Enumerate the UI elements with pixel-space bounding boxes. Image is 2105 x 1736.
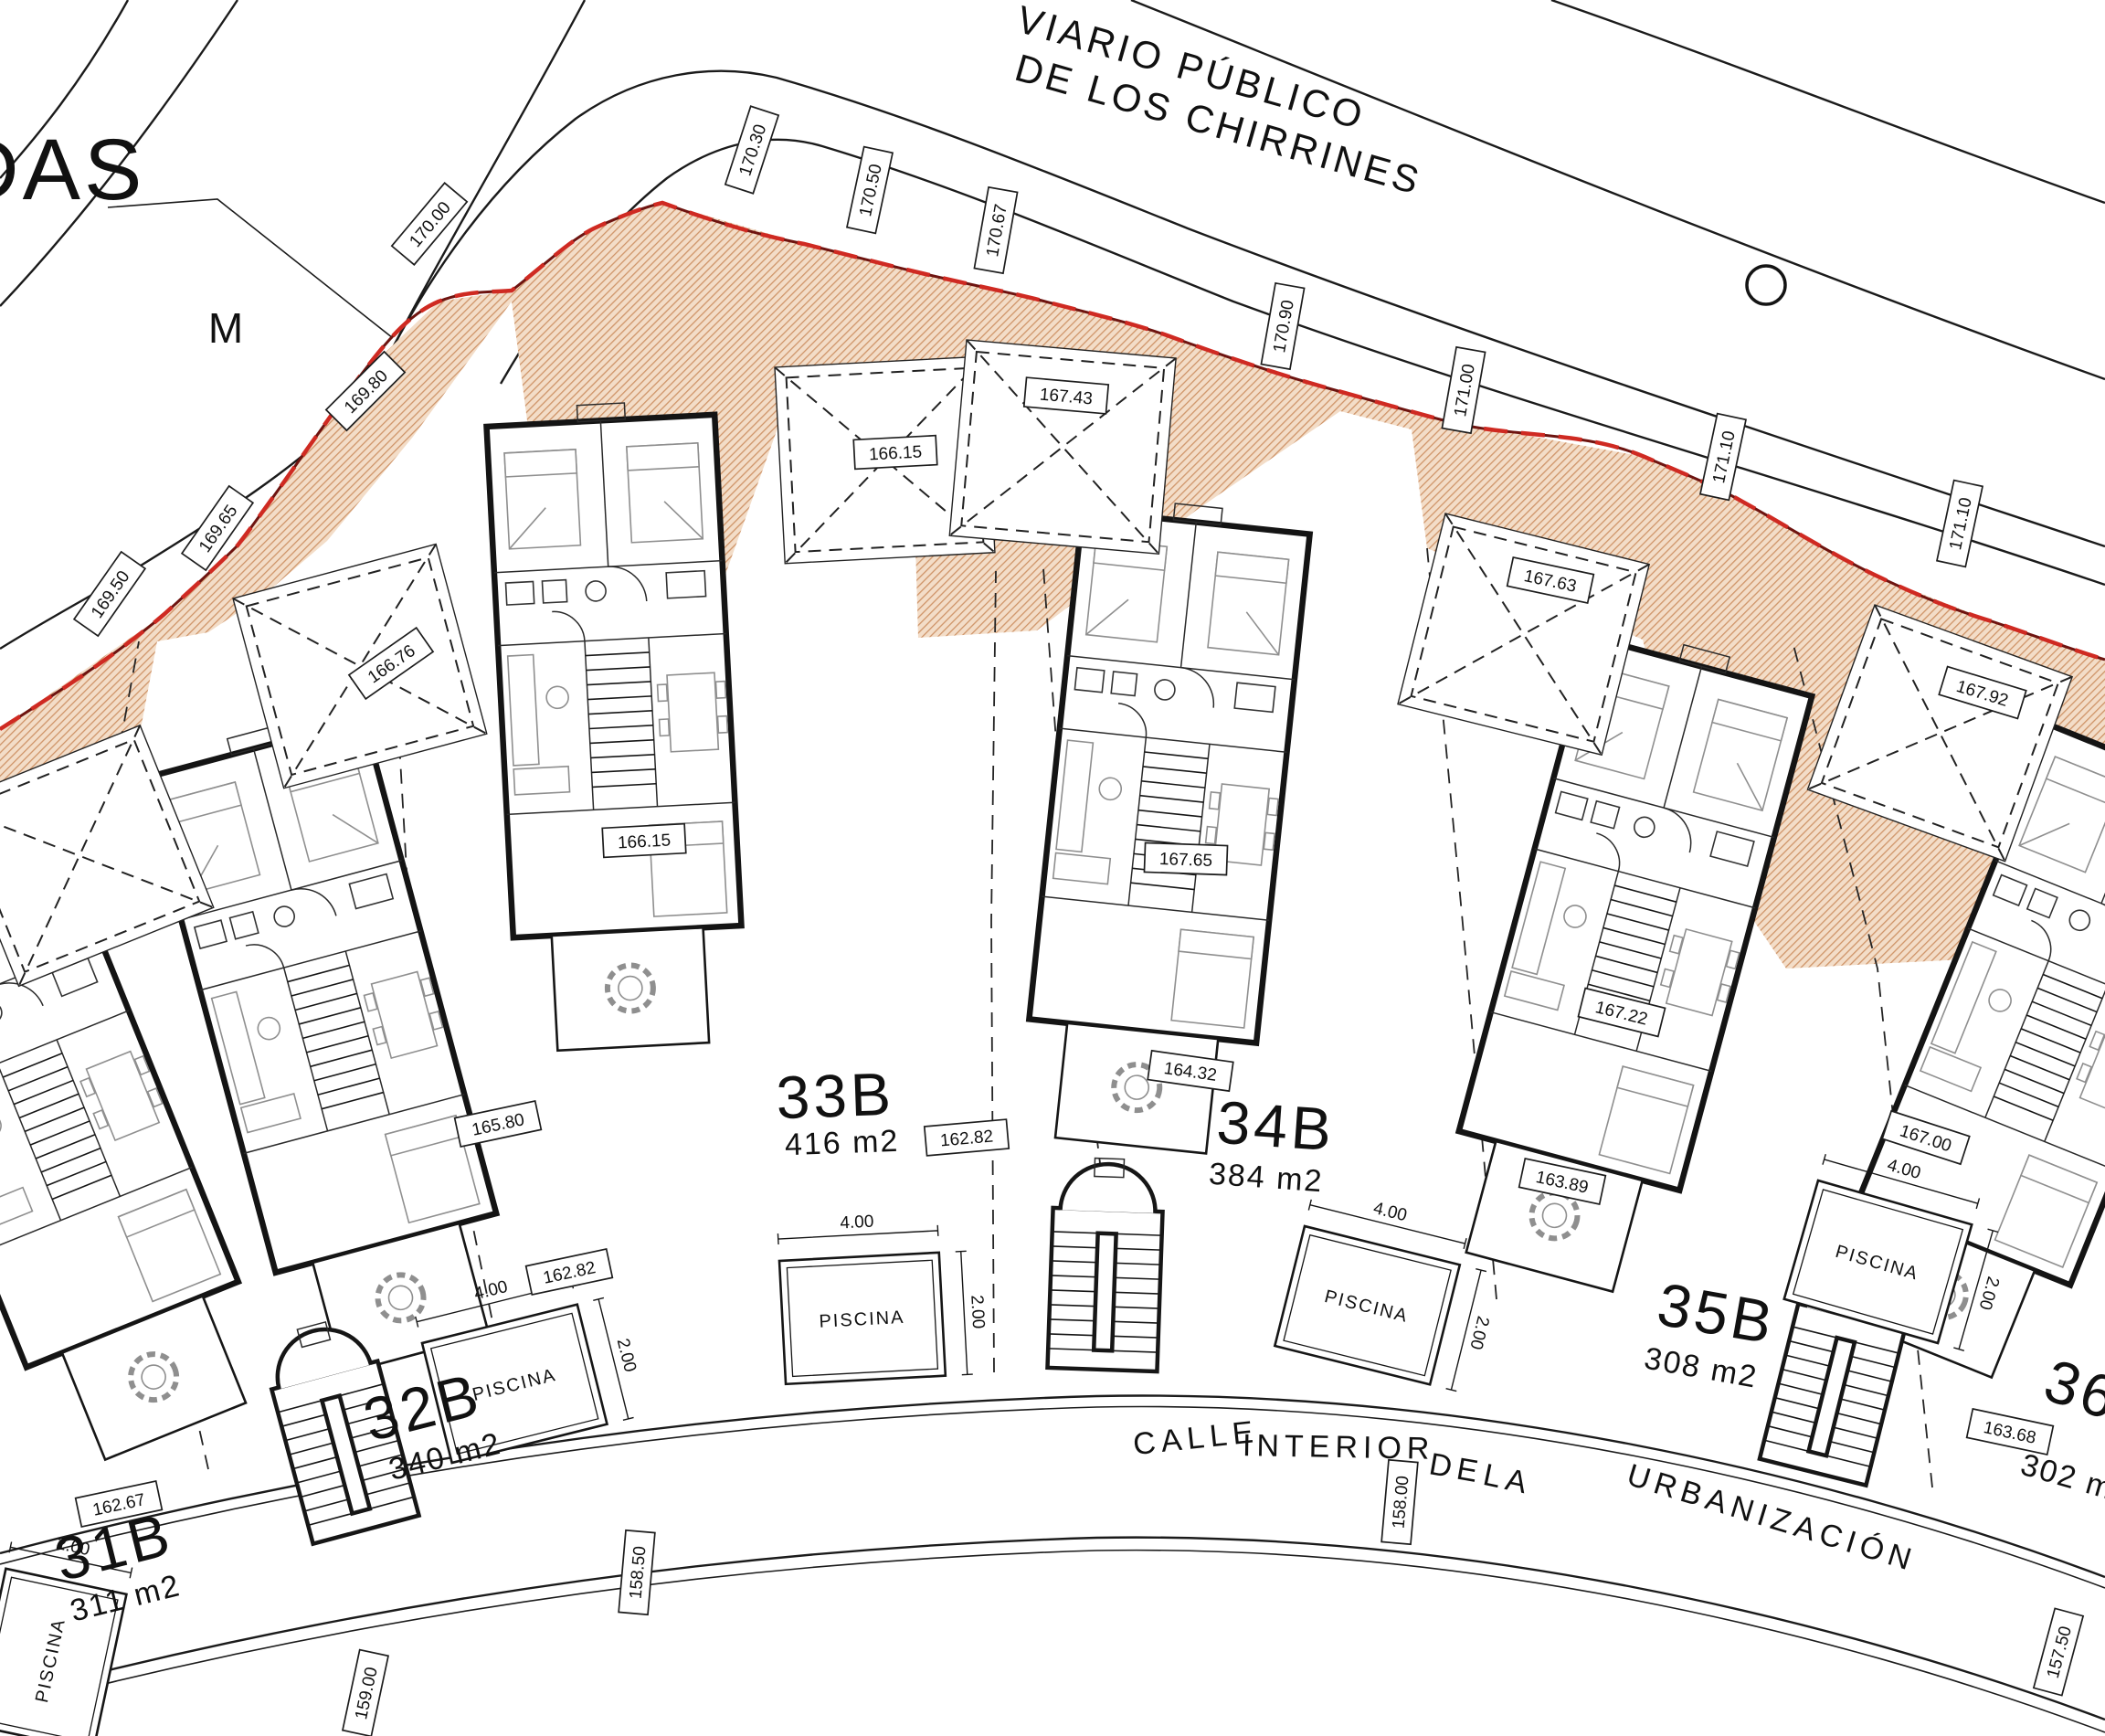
m-label: M xyxy=(208,304,243,352)
elevation-marker: 170.30 xyxy=(725,106,778,193)
plot-35b-id: 35B xyxy=(1653,1270,1781,1357)
plot-36b-area: 302 m2 xyxy=(2017,1447,2105,1512)
street-calle-seg-0: CALLE xyxy=(1131,1414,1260,1462)
pool-width-dim: 2.00 xyxy=(1465,1314,1492,1351)
parcel-line-33-34a xyxy=(991,571,996,1372)
pool-length-dim: 4.00 xyxy=(840,1212,874,1233)
o-symbol xyxy=(1747,266,1785,304)
elevation-marker: 170.90 xyxy=(1261,283,1304,369)
site-plan-sheet: 4.00 2.00 PISCINA 4.00 2.00 PISCINA 4.00… xyxy=(0,0,2105,1736)
leader-line xyxy=(108,199,393,338)
elevation-marker: 166.15 xyxy=(602,824,686,858)
elevation-marker: 167.43 xyxy=(1024,377,1108,414)
street-calle-seg-1: INTERIOR xyxy=(1243,1428,1435,1466)
plot-34b-id: 34B xyxy=(1214,1088,1337,1164)
plot-33b-area: 416 m2 xyxy=(784,1124,900,1162)
elevation-marker-value: 167.65 xyxy=(1159,850,1213,871)
elevation-marker: 157.50 xyxy=(2034,1608,2083,1695)
street-calle-seg-2: DE xyxy=(1426,1446,1486,1490)
elevation-marker: 167.65 xyxy=(1144,842,1227,874)
street-calle-seg-3: LA xyxy=(1480,1457,1535,1501)
roof-34b xyxy=(949,340,1176,554)
pool-33b: 4.00 2.00 PISCINA xyxy=(777,1206,989,1383)
elevation-marker: 170.00 xyxy=(392,183,467,265)
elevation-marker: 159.00 xyxy=(343,1650,388,1736)
elevation-marker: 163.68 xyxy=(1967,1409,2054,1455)
pool-width-dim: 2.00 xyxy=(613,1337,640,1374)
elevation-marker: 162.82 xyxy=(526,1249,613,1295)
bottom-road-kerb-lower-1 xyxy=(0,1538,2105,1720)
elevation-marker: 171.00 xyxy=(1442,347,1485,433)
elevation-marker: 162.82 xyxy=(925,1119,1009,1156)
elevation-marker: 169.50 xyxy=(74,552,145,636)
elevation-marker-value: 166.15 xyxy=(869,442,923,464)
elevation-marker-value: 166.15 xyxy=(618,831,672,852)
site-plan-drawing: 4.00 2.00 PISCINA 4.00 2.00 PISCINA 4.00… xyxy=(0,0,2105,1736)
elevation-marker: 158.50 xyxy=(619,1530,655,1614)
pool-width-dim: 2.00 xyxy=(967,1295,988,1329)
house-33b xyxy=(486,398,748,1053)
elevation-marker: 170.50 xyxy=(847,147,893,234)
bottom-road-kerb-lower-2 xyxy=(0,1551,2105,1732)
plot-33b-id: 33B xyxy=(775,1060,895,1131)
plot-34b-area: 384 m2 xyxy=(1208,1157,1325,1200)
stair-plot-33 xyxy=(1047,1157,1164,1371)
elevation-marker: 158.00 xyxy=(1381,1460,1418,1544)
top-road-kerb-north-outer xyxy=(1551,0,2105,203)
elevation-marker: 166.15 xyxy=(853,436,937,470)
corner-partial-label: DAS xyxy=(0,122,145,218)
